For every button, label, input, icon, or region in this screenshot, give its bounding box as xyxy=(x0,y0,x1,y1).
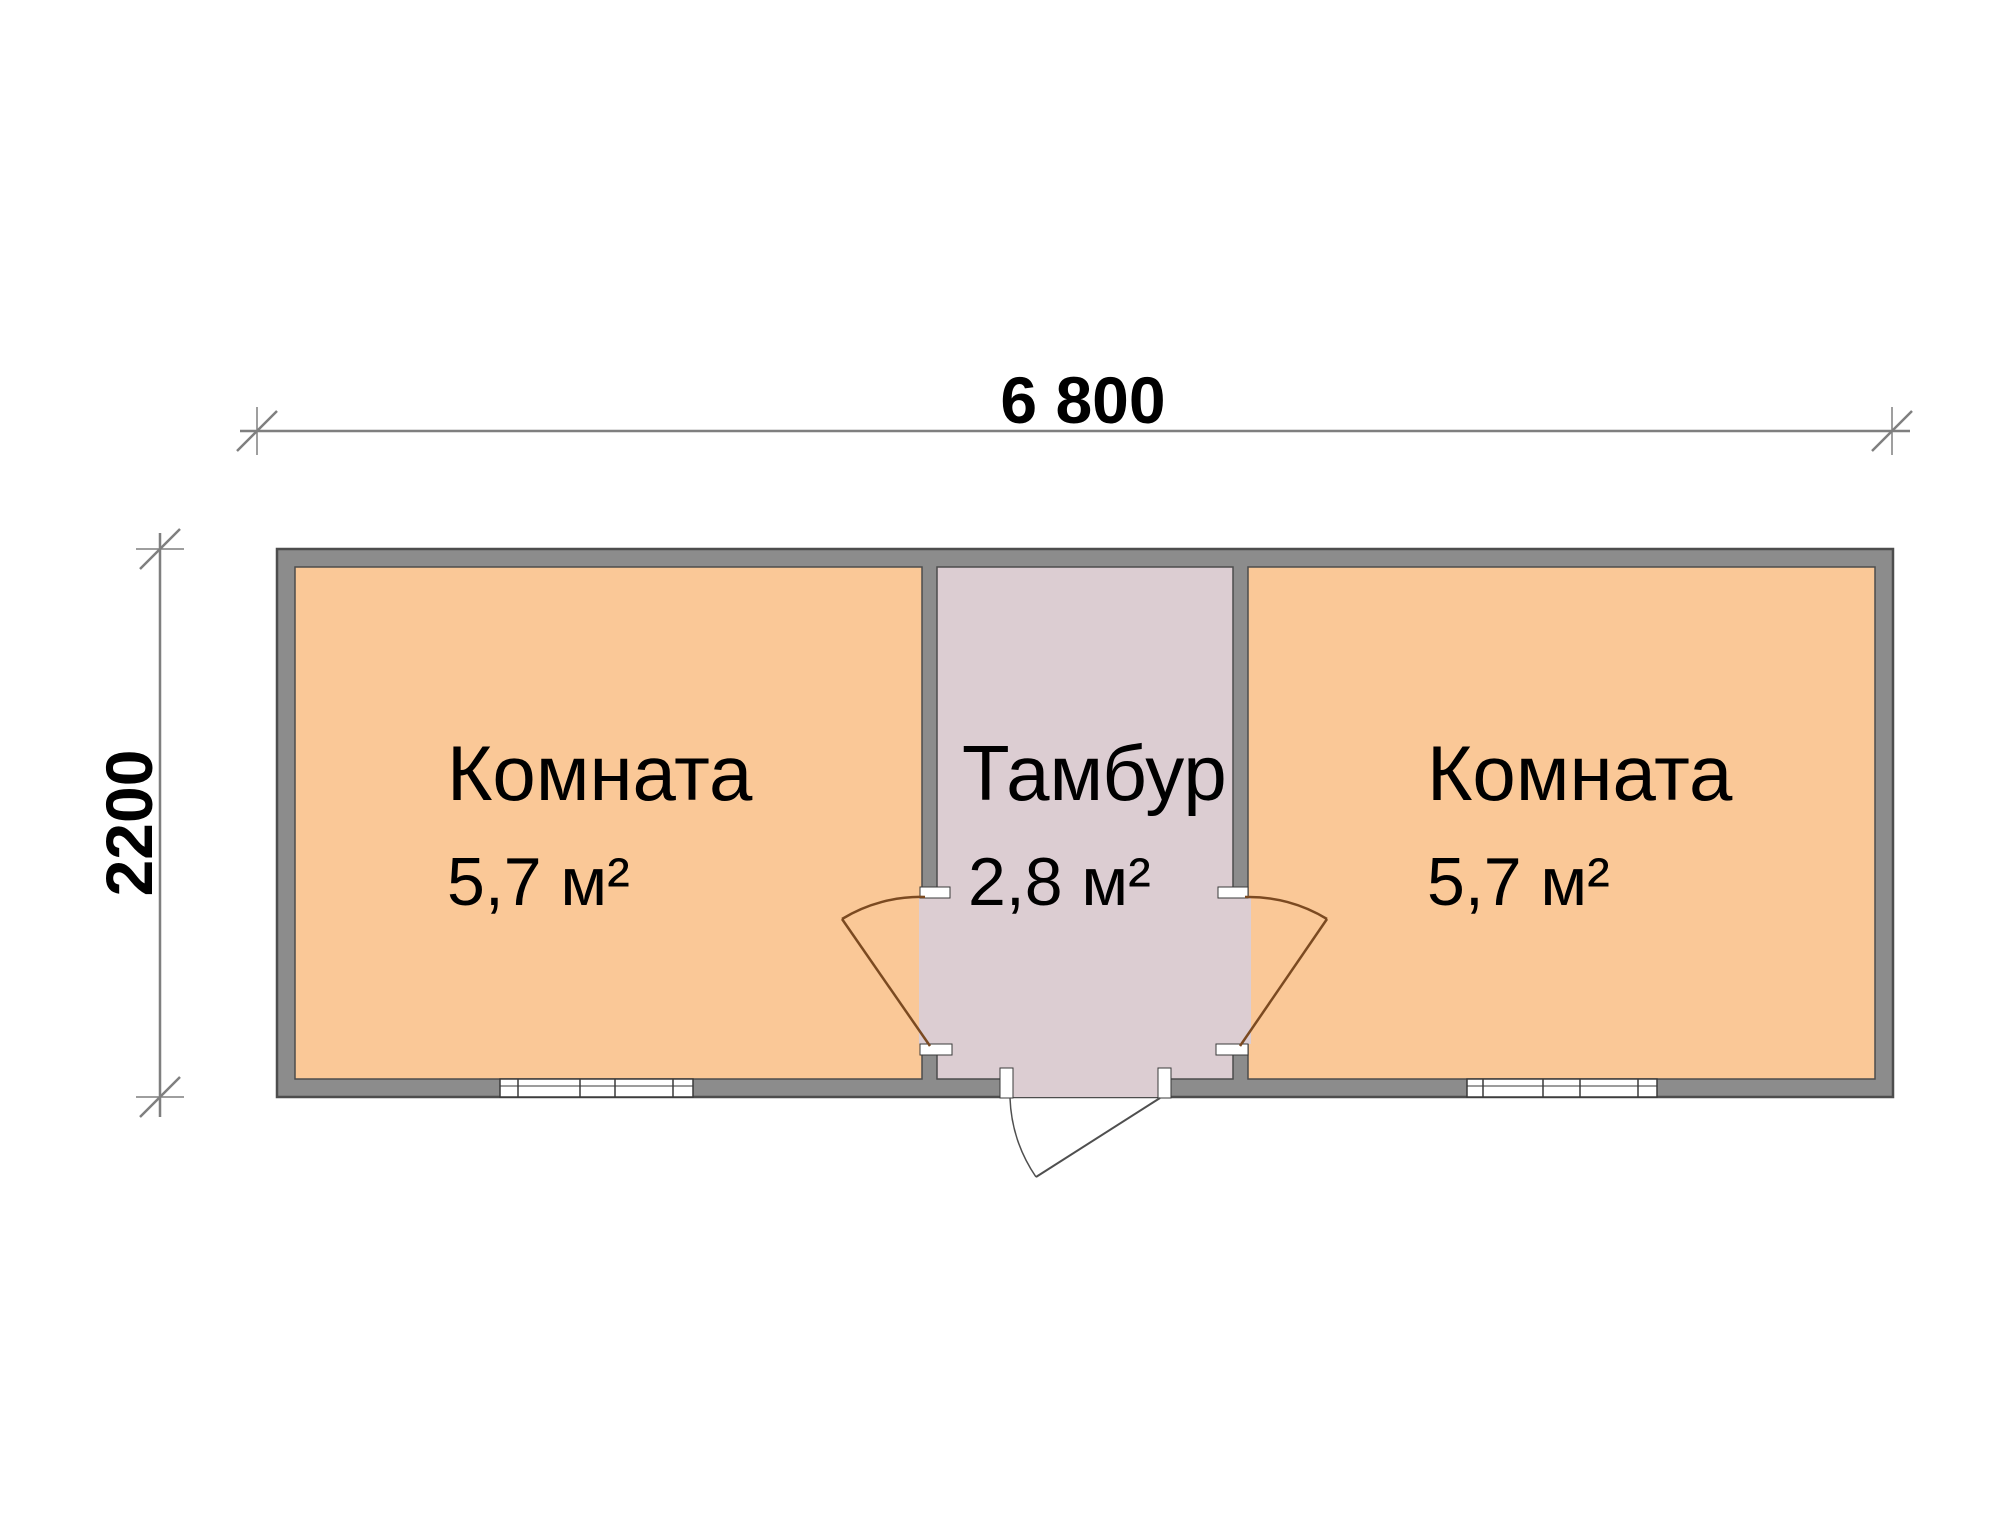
tambour-area: 2,8 м² xyxy=(968,844,1151,920)
room-left-area: 5,7 м² xyxy=(447,844,630,920)
doorway-opening-right xyxy=(1231,898,1251,1044)
room-right-floor xyxy=(1248,567,1875,1079)
room-left-floor xyxy=(295,567,922,1079)
entrance-opening xyxy=(1013,1076,1158,1097)
tambour-name: Тамбур xyxy=(962,729,1227,817)
entrance-left-jamb xyxy=(1000,1068,1013,1098)
window-left xyxy=(500,1079,693,1097)
width-dimension-label: 6 800 xyxy=(1000,363,1165,437)
room-right-name: Комната xyxy=(1427,729,1733,817)
room-right-area: 5,7 м² xyxy=(1427,844,1610,920)
doorway-opening-left xyxy=(919,898,939,1044)
right-doorway-top-jamb xyxy=(1218,887,1248,898)
room-left-name: Комната xyxy=(447,729,753,817)
right-doorway-bottom-jamb xyxy=(1216,1044,1248,1055)
tambour-floor xyxy=(937,567,1233,1079)
window-right-frame xyxy=(1467,1079,1657,1097)
left-doorway-bottom-jamb xyxy=(920,1044,952,1055)
height-dimension-label: 2200 xyxy=(92,750,166,897)
floor-plan-page: 6 800 2200 xyxy=(0,0,2000,1539)
window-right xyxy=(1467,1079,1657,1097)
entrance-right-jamb xyxy=(1158,1068,1171,1098)
window-left-frame xyxy=(500,1079,693,1097)
floor-plan-drawing: 6 800 2200 xyxy=(0,0,2000,1539)
